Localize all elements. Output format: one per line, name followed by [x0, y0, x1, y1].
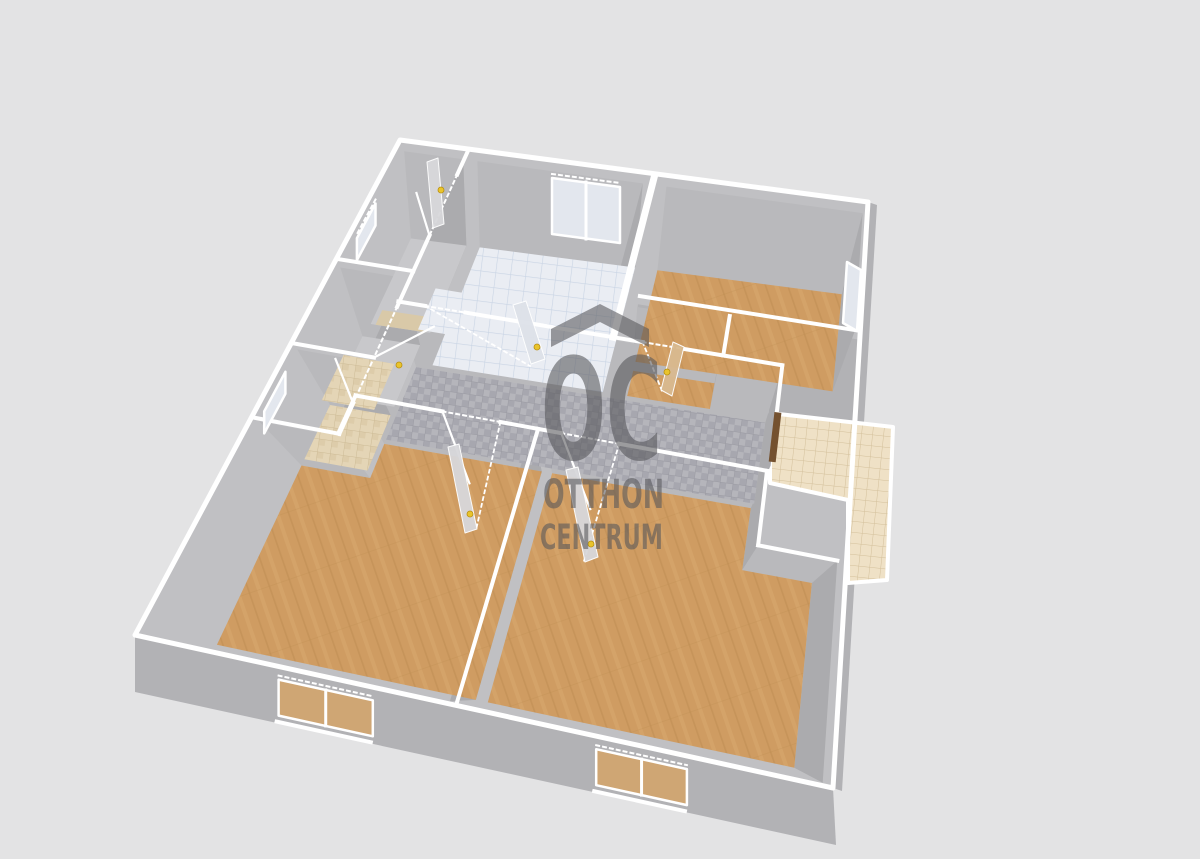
door-handle-0	[438, 187, 444, 193]
watermark-text-centrum: CENTRUM	[540, 518, 663, 558]
watermark-text-oc: OC	[541, 329, 662, 493]
floorplan-geometry	[135, 140, 893, 845]
window-room-top-right	[843, 262, 861, 331]
door-handle-2	[534, 344, 540, 350]
door-handle-3	[664, 369, 670, 375]
floorplan-3d-view: OC OTTHON CENTRUM	[0, 0, 1200, 859]
door-handle-4	[467, 511, 473, 517]
door-handle-1	[396, 362, 402, 368]
watermark-logo: OC OTTHON CENTRUM	[540, 304, 664, 558]
floorplan-canvas: OC OTTHON CENTRUM	[0, 0, 1200, 859]
door-panel-terrace	[773, 416, 778, 458]
watermark-text-otthon: OTTHON	[543, 472, 664, 518]
